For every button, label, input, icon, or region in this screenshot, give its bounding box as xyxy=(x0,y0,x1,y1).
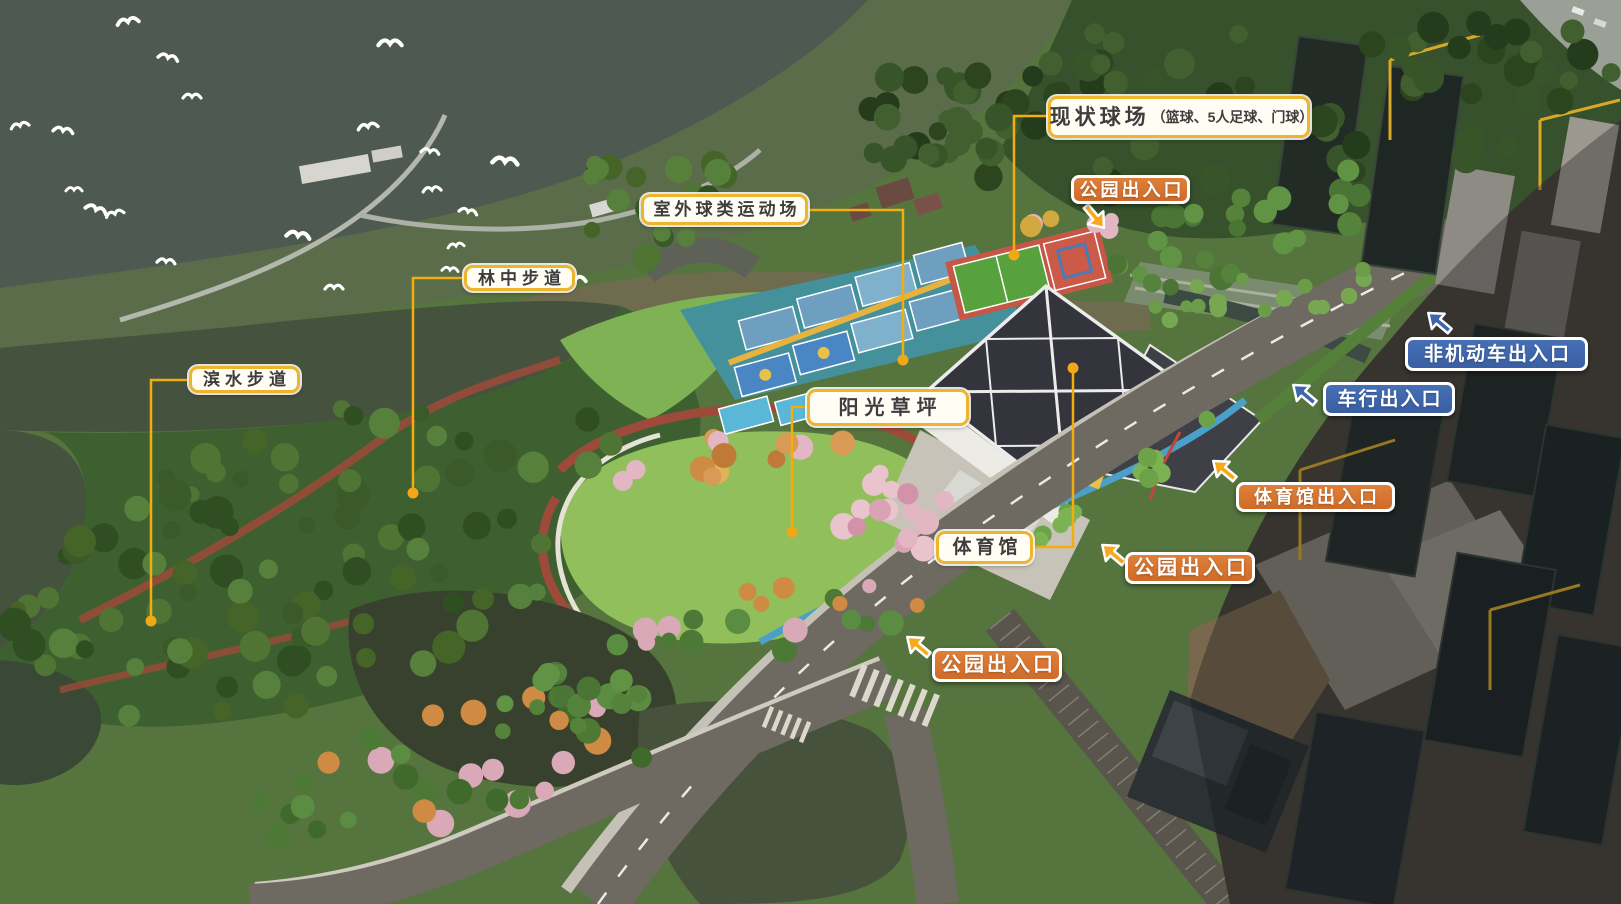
callout-park-entrance-bottom: 公园出入口 xyxy=(932,648,1062,682)
callout-forest-trail: 林中步道 xyxy=(464,265,575,291)
callout-non-motorized-entrance: 非机动车出入口 xyxy=(1405,337,1588,371)
callout-park-entrance-top: 公园出入口 xyxy=(1071,175,1190,204)
callout-gym-entrance: 体育馆出入口 xyxy=(1236,482,1395,512)
callout-gymnasium: 体育馆 xyxy=(936,531,1033,564)
callout-existing-courts-subtitle: （篮球、5人足球、门球） xyxy=(1152,110,1314,124)
callout-existing-courts: 现状球场 （篮球、5人足球、门球） xyxy=(1048,96,1310,138)
callout-sunny-lawn: 阳光草坪 xyxy=(807,389,969,426)
callout-outdoor-ball-area: 室外球类运动场 xyxy=(641,194,808,225)
scene-graphics xyxy=(0,0,1621,904)
callout-park-entrance-middle: 公园出入口 xyxy=(1125,552,1255,584)
park-entrance-bottom-arrow-icon xyxy=(901,629,935,662)
callout-waterside-trail: 滨水步道 xyxy=(189,366,300,393)
callout-vehicle-entrance: 车行出入口 xyxy=(1323,382,1455,416)
callout-existing-courts-title: 现状球场 xyxy=(1050,107,1150,128)
aerial-masterplan-rendering: 现状球场 （篮球、5人足球、门球） 室外球类运动场 林中步道 滨水步道 阳光草坪… xyxy=(0,0,1621,904)
